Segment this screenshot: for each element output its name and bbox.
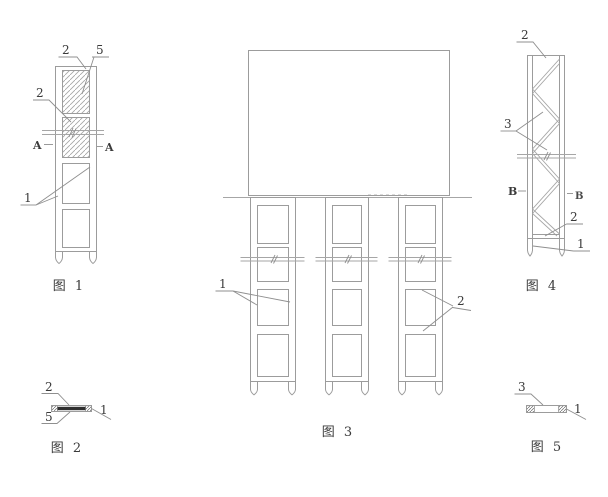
figure-5: 3 1 图 5 xyxy=(515,380,587,455)
pile-column xyxy=(389,198,452,395)
pile-foot xyxy=(56,258,63,264)
solid-core xyxy=(58,407,86,410)
truss-bracing xyxy=(533,59,560,234)
pile-leg xyxy=(251,382,258,390)
ref-numeral: 3 xyxy=(504,117,512,131)
pile-column xyxy=(241,198,305,395)
pile-leg xyxy=(436,382,443,390)
pile-foot xyxy=(251,390,258,395)
open-panel xyxy=(333,206,362,244)
figure-2: 2 5 1 图 2 xyxy=(42,380,112,456)
pile-foot xyxy=(528,251,533,257)
hatched-end-block xyxy=(559,406,567,413)
hatched-panel xyxy=(63,118,90,158)
pile-leg xyxy=(560,239,565,251)
leader-line xyxy=(59,57,87,69)
open-panel xyxy=(406,335,436,377)
section-mark-right: B xyxy=(575,191,583,202)
pile-outline xyxy=(528,56,565,239)
ref-numeral: 3 xyxy=(518,380,526,394)
open-panel xyxy=(333,248,362,282)
figure-4: B B 2 3 2 1 图 4 xyxy=(501,28,591,294)
pile-leg xyxy=(399,382,406,390)
pile-foot xyxy=(289,390,296,395)
hatched-end-block xyxy=(527,406,535,413)
pile-leg xyxy=(326,382,333,390)
leader-line xyxy=(423,307,453,331)
figure-caption: 图 1 xyxy=(53,279,83,294)
ref-numeral: 5 xyxy=(96,43,104,57)
figure-caption: 图 2 xyxy=(51,441,81,456)
pile-foot xyxy=(436,390,443,395)
leader-line xyxy=(515,394,544,405)
open-panel xyxy=(258,248,289,282)
section-mark-right: A xyxy=(104,141,114,154)
section-mark-left: A xyxy=(32,139,42,152)
pile-leg xyxy=(289,382,296,390)
ref-numeral: 1 xyxy=(219,277,227,291)
ref-numeral: 1 xyxy=(24,191,32,205)
open-panel xyxy=(258,335,289,377)
figure-1: A A 2 5 2 1 图 1 xyxy=(21,43,115,294)
pile-foot xyxy=(399,390,406,395)
section-mark-left: B xyxy=(508,185,517,198)
open-panel xyxy=(333,290,362,326)
patent-drawing-sheet: A A 2 5 2 1 图 1 2 5 1 图 2 xyxy=(0,0,608,497)
building-slab xyxy=(249,51,450,196)
open-panel xyxy=(258,206,289,244)
open-panel xyxy=(258,290,289,326)
ref-numeral: 2 xyxy=(45,380,53,394)
figure-caption: 图 5 xyxy=(531,440,561,455)
ref-numeral: 1 xyxy=(577,237,585,251)
leader-line xyxy=(422,290,453,306)
ref-numeral: 2 xyxy=(521,28,529,42)
leader-line xyxy=(516,112,543,131)
pile-leg xyxy=(362,382,369,390)
figure-3: 1 2 图 3 xyxy=(216,51,473,441)
figure-caption: 图 3 xyxy=(322,425,352,440)
figure-caption: 图 4 xyxy=(526,279,556,294)
pile-column xyxy=(316,198,378,395)
ref-numeral: 5 xyxy=(45,410,53,424)
hatched-end-block xyxy=(86,406,92,412)
ref-numeral: 2 xyxy=(62,43,70,57)
open-panel xyxy=(333,335,362,377)
ref-numeral: 2 xyxy=(570,210,578,224)
open-panel xyxy=(406,206,436,244)
ref-numeral: 1 xyxy=(100,403,108,417)
pile-foot xyxy=(560,251,565,257)
pile-foot xyxy=(326,390,333,395)
leader-line xyxy=(42,394,70,406)
leader-line xyxy=(516,131,547,150)
leader-line xyxy=(533,246,574,251)
hatched-panel xyxy=(63,71,90,114)
pile-leg xyxy=(528,239,533,251)
drawing-canvas: A A 2 5 2 1 图 1 2 5 1 图 2 xyxy=(0,0,608,497)
ref-numeral: 2 xyxy=(457,294,465,308)
open-panel xyxy=(63,210,90,248)
pile-foot xyxy=(362,390,369,395)
pile-foot xyxy=(90,258,97,264)
open-panel xyxy=(406,248,436,282)
ref-numeral: 2 xyxy=(36,86,44,100)
